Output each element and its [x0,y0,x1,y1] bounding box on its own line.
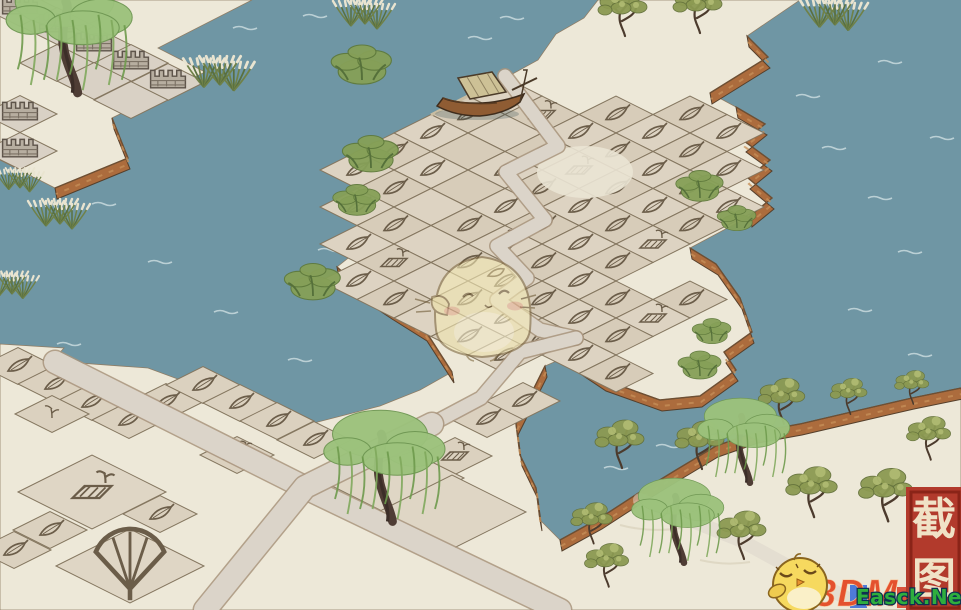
ghost-blush [444,307,460,316]
game-viewport: 3DM 截 图 Easck.Net [0,0,961,610]
game-map: 3DM 截 图 Easck.Net [0,0,961,610]
chick-belly [787,587,821,609]
seal-char-top: 截 [912,495,956,544]
site-watermark-text: Easck.Net [856,585,961,609]
ghost-blush [507,302,523,311]
ghost-belly [454,312,514,352]
